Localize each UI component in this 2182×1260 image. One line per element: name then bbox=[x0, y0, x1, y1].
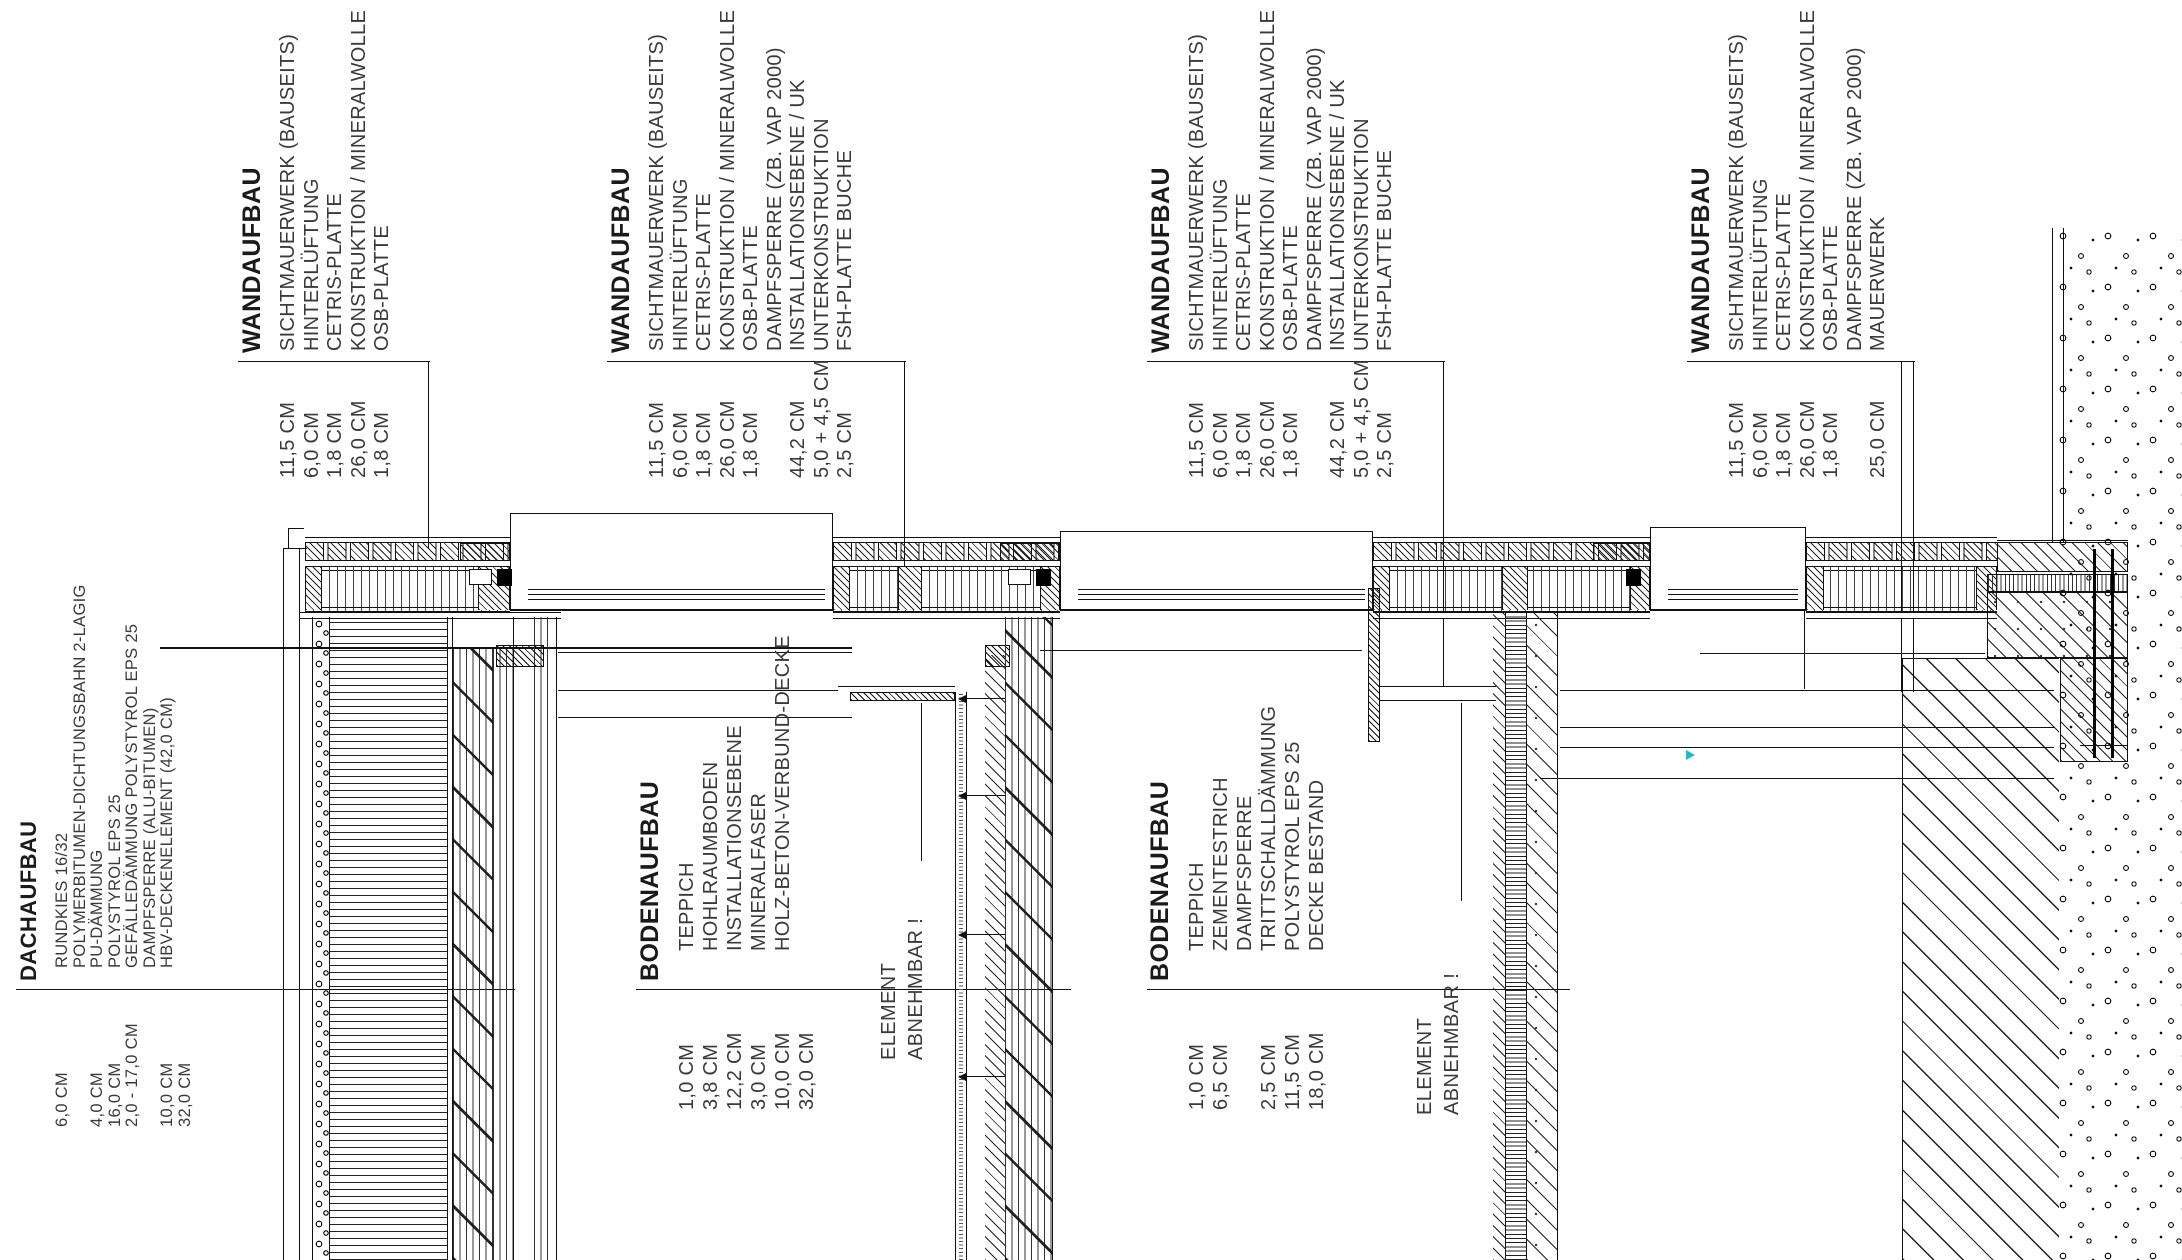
legend-row: 26,0 CMKONSTRUKTION / MINERALWOLLE bbox=[1797, 6, 1821, 480]
dim-value: 2,0 - 17,0 CM bbox=[124, 984, 142, 1140]
layer-label: DAMPFSPERRE (ZB. VAP 2000) bbox=[1304, 47, 1328, 351]
legend-row: 3,8 CMHOHLRAUMBODEN bbox=[699, 702, 723, 1140]
layer-label: DAMPFSPERRE (ZB. VAP 2000) bbox=[764, 47, 788, 351]
legend-row: DAMPFSPERRE bbox=[1233, 702, 1257, 1140]
legend-row: 5,0 + 4,5 CMUNTERKONSTRUKTION bbox=[1351, 6, 1375, 480]
legend-block-bodenaufbau-1: BODENAUFBAU1,0 CMTEPPICH3,8 CMHOHLRAUMBO… bbox=[636, 702, 808, 1140]
layer-label: OSB-PLATTE bbox=[1280, 225, 1304, 351]
dim-value: 1,8 CM bbox=[1773, 367, 1797, 480]
legend-row: 26,0 CMKONSTRUKTION / MINERALWOLLE bbox=[348, 6, 372, 480]
note-line: ELEMENT bbox=[876, 858, 903, 1060]
layer-label: ZEMENTESTRICH bbox=[1209, 777, 1233, 951]
legend-row: 1,8 CMCETRIS-PLATTE bbox=[324, 6, 348, 480]
legend-row: DAMPFSPERRE (ZB. VAP 2000) bbox=[764, 6, 788, 480]
layer-label: OSB-PLATTE bbox=[371, 225, 395, 351]
legend-row: 5,0 + 4,5 CMUNTERKONSTRUKTION bbox=[811, 6, 835, 480]
layer-label: UNTERKONSTRUKTION bbox=[1351, 118, 1375, 351]
legend-row: 1,8 CMOSB-PLATTE bbox=[371, 6, 395, 480]
legend-row: 32,0 CM bbox=[177, 445, 195, 1140]
legend-block-wandaufbau-3: WANDAUFBAU11,5 CMSICHTMAUERWERK (BAUSEIT… bbox=[1147, 6, 1447, 480]
layer-label: RUNDKIES 16/32 bbox=[54, 833, 72, 968]
layer-label: HINTERLÜFTUNG bbox=[1210, 178, 1234, 351]
legend-row: 10,0 CMHOLZ-BETON-VERBUND-DECKE bbox=[771, 702, 795, 1140]
construction-detail-drawing: DACHAUFBAU6,0 CMRUNDKIES 16/32POLYMERBIT… bbox=[0, 0, 2182, 1260]
note-block-element-2: ELEMENTABNEHMBAR ! bbox=[1412, 898, 1472, 1115]
legend-row: 2,5 CMFSH-PLATTE BUCHE bbox=[1374, 6, 1398, 480]
layer-label: FSH-PLATTE BUCHE bbox=[834, 150, 858, 351]
legend-heading: DACHAUFBAU bbox=[16, 445, 42, 981]
dim-value: 6,0 CM bbox=[1210, 367, 1234, 480]
dim-value: 11,5 CM bbox=[277, 367, 301, 480]
legend-row: 16,0 CMPOLYSTYROL EPS 25 bbox=[107, 445, 125, 1140]
legend-row: 11,5 CMSICHTMAUERWERK (BAUSEITS) bbox=[1726, 6, 1750, 480]
legend-row: 1,8 CMOSB-PLATTE bbox=[1820, 6, 1844, 480]
legend-heading: BODENAUFBAU bbox=[1146, 702, 1175, 981]
dim-value: 1,8 CM bbox=[1233, 367, 1257, 480]
dim-value: 4,0 CM bbox=[89, 984, 107, 1140]
dim-value: 10,0 CM bbox=[771, 967, 795, 1140]
dim-value: 26,0 CM bbox=[717, 367, 741, 480]
dim-value: 26,0 CM bbox=[1257, 367, 1281, 480]
dim-value: 32,0 CM bbox=[795, 967, 819, 1140]
legend-row: 44,2 CMINSTALLATIONSEBENE / UK bbox=[1327, 6, 1351, 480]
dim-value: 5,0 + 4,5 CM bbox=[1351, 367, 1375, 480]
legend-block-dachaufbau: DACHAUFBAU6,0 CMRUNDKIES 16/32POLYMERBIT… bbox=[16, 445, 202, 1140]
layer-label: DAMPFSPERRE (ALU-BITUMEN) bbox=[142, 707, 160, 968]
dim-value: 2,5 CM bbox=[834, 367, 858, 480]
dim-value: 11,5 CM bbox=[1186, 367, 1210, 480]
legend-row: 1,8 CMCETRIS-PLATTE bbox=[1773, 6, 1797, 480]
legend-row: DAMPFSPERRE (ZB. VAP 2000) bbox=[1304, 6, 1328, 480]
legend-row: 6,0 CMHINTERLÜFTUNG bbox=[1210, 6, 1234, 480]
layer-label: CETRIS-PLATTE bbox=[1233, 193, 1257, 351]
legend-heading: WANDAUFBAU bbox=[1687, 6, 1716, 353]
legend-block-wandaufbau-4: WANDAUFBAU11,5 CMSICHTMAUERWERK (BAUSEIT… bbox=[1687, 6, 1922, 480]
layer-label: FSH-PLATTE BUCHE bbox=[1374, 150, 1398, 351]
layer-label: INSTALLATIONSEBENE / UK bbox=[787, 79, 811, 351]
dim-value: 2,5 CM bbox=[1374, 367, 1398, 480]
layer-label: TEPPICH bbox=[1185, 862, 1209, 951]
dim-value: 1,8 CM bbox=[371, 367, 395, 480]
legend-row: 10,0 CMHBV-DECKENELEMENT (42,0 CM) bbox=[159, 445, 177, 1140]
layer-label: HINTERLÜFTUNG bbox=[670, 178, 694, 351]
note-line: ABNEHMBAR ! bbox=[903, 858, 930, 1060]
legend-row: 18,0 CMDECKE BESTAND bbox=[1305, 702, 1329, 1140]
layer-label: KONSTRUKTION / MINERALWOLLE bbox=[717, 10, 741, 351]
layer-label: TEPPICH bbox=[675, 862, 699, 951]
layer-label: INSTALLATIONSEBENE bbox=[723, 725, 747, 951]
dim-value: 44,2 CM bbox=[787, 367, 811, 480]
legend-row: 2,5 CMTRITTSCHALLDÄMMUNG bbox=[1257, 702, 1281, 1140]
dim-value: 3,0 CM bbox=[747, 967, 771, 1140]
dim-value: 1,8 CM bbox=[1820, 367, 1844, 480]
dim-value: 16,0 CM bbox=[107, 984, 125, 1140]
legend-row: 4,0 CMPU-DÄMMUNG bbox=[89, 445, 107, 1140]
layer-label: POLYSTYROL EPS 25 bbox=[1281, 741, 1305, 951]
legend-row: 1,8 CMCETRIS-PLATTE bbox=[1233, 6, 1257, 480]
legend-row: 2,5 CMFSH-PLATTE BUCHE bbox=[834, 6, 858, 480]
legend-row: 1,8 CMOSB-PLATTE bbox=[740, 6, 764, 480]
layer-label: OSB-PLATTE bbox=[740, 225, 764, 351]
dim-value: 25,0 CM bbox=[1867, 367, 1891, 480]
layer-label: PU-DÄMMUNG bbox=[89, 850, 107, 969]
dim-value: 11,5 CM bbox=[646, 367, 670, 480]
legend-row: 11,5 CMSICHTMAUERWERK (BAUSEITS) bbox=[277, 6, 301, 480]
dim-value: 6,0 CM bbox=[670, 367, 694, 480]
layer-label: DAMPFSPERRE bbox=[1233, 795, 1257, 951]
layer-label: HOLZ-BETON-VERBUND-DECKE bbox=[771, 635, 795, 951]
dim-value: 2,5 CM bbox=[1257, 967, 1281, 1140]
dim-value: 1,8 CM bbox=[1280, 367, 1304, 480]
legend-row: 25,0 CMMAUERWERK bbox=[1867, 6, 1891, 480]
dim-value: 44,2 CM bbox=[1327, 367, 1351, 480]
layer-label: KONSTRUKTION / MINERALWOLLE bbox=[1797, 10, 1821, 351]
legend-heading: WANDAUFBAU bbox=[607, 6, 636, 353]
layer-label: CETRIS-PLATTE bbox=[693, 193, 717, 351]
dim-value: 26,0 CM bbox=[1797, 367, 1821, 480]
dim-value: 32,0 CM bbox=[177, 984, 195, 1140]
layer-label: OSB-PLATTE bbox=[1820, 225, 1844, 351]
layer-label: DECKE BESTAND bbox=[1305, 780, 1329, 951]
legend-block-bodenaufbau-2: BODENAUFBAU1,0 CMTEPPICH6,5 CMZEMENTESTR… bbox=[1146, 702, 1362, 1140]
layer-label: KONSTRUKTION / MINERALWOLLE bbox=[348, 10, 372, 351]
legend-block-wandaufbau-1: WANDAUFBAU11,5 CMSICHTMAUERWERK (BAUSEIT… bbox=[238, 6, 438, 480]
legend-row: DAMPFSPERRE (ALU-BITUMEN) bbox=[142, 445, 160, 1140]
layer-label: CETRIS-PLATTE bbox=[1773, 193, 1797, 351]
legend-row: 1,8 CMOSB-PLATTE bbox=[1280, 6, 1304, 480]
layer-label: SICHTMAUERWERK (BAUSEITS) bbox=[1186, 34, 1210, 351]
legend-row: 6,0 CMHINTERLÜFTUNG bbox=[670, 6, 694, 480]
legend-row: 6,0 CMHINTERLÜFTUNG bbox=[301, 6, 325, 480]
legend-row: 6,0 CMHINTERLÜFTUNG bbox=[1750, 6, 1774, 480]
layer-label: DAMPFSPERRE (ZB. VAP 2000) bbox=[1844, 47, 1868, 351]
legend-row: 32,0 CM bbox=[795, 702, 819, 1140]
layer-label: INSTALLATIONSEBENE / UK bbox=[1327, 79, 1351, 351]
dim-value: 18,0 CM bbox=[1305, 967, 1329, 1140]
dim-value: 6,0 CM bbox=[301, 367, 325, 480]
dim-value: 6,0 CM bbox=[54, 984, 72, 1140]
dim-value: 5,0 + 4,5 CM bbox=[811, 367, 835, 480]
legend-row: POLYMERBITUMEN-DICHTUNGSBAHN 2-LAGIG bbox=[72, 445, 90, 1140]
layer-label: SICHTMAUERWERK (BAUSEITS) bbox=[646, 34, 670, 351]
note-block-element-1: ELEMENTABNEHMBAR ! bbox=[876, 858, 936, 1060]
legend-row: 11,5 CMPOLYSTYROL EPS 25 bbox=[1281, 702, 1305, 1140]
dim-value: 12,2 CM bbox=[723, 967, 747, 1140]
dim-value: 1,8 CM bbox=[693, 367, 717, 480]
legend-row: 11,5 CMSICHTMAUERWERK (BAUSEITS) bbox=[646, 6, 670, 480]
legend-row: DAMPFSPERRE (ZB. VAP 2000) bbox=[1844, 6, 1868, 480]
layer-label: GEFÄLLEDÄMMUNG POLYSTYROL EPS 25 bbox=[124, 624, 142, 968]
dim-value: 1,8 CM bbox=[324, 367, 348, 480]
legend-row: 11,5 CMSICHTMAUERWERK (BAUSEITS) bbox=[1186, 6, 1210, 480]
layer-label: MAUERWERK bbox=[1867, 216, 1891, 351]
legend-row: 3,0 CMMINERALFASER bbox=[747, 702, 771, 1140]
legend-row: 26,0 CMKONSTRUKTION / MINERALWOLLE bbox=[717, 6, 741, 480]
layer-label: HBV-DECKENELEMENT (42,0 CM) bbox=[159, 697, 177, 968]
note-line: ELEMENT bbox=[1412, 898, 1439, 1115]
legend-layer: DACHAUFBAU6,0 CMRUNDKIES 16/32POLYMERBIT… bbox=[0, 0, 2182, 1260]
layer-label: HINTERLÜFTUNG bbox=[301, 178, 325, 351]
layer-label: UNTERKONSTRUKTION bbox=[811, 118, 835, 351]
layer-label: KONSTRUKTION / MINERALWOLLE bbox=[1257, 10, 1281, 351]
layer-label: SICHTMAUERWERK (BAUSEITS) bbox=[1726, 34, 1750, 351]
legend-row: 12,2 CMINSTALLATIONSEBENE bbox=[723, 702, 747, 1140]
legend-row: 1,0 CMTEPPICH bbox=[1185, 702, 1209, 1140]
layer-label: SICHTMAUERWERK (BAUSEITS) bbox=[277, 34, 301, 351]
legend-row: 6,0 CMRUNDKIES 16/32 bbox=[54, 445, 72, 1140]
layer-label: HOHLRAUMBODEN bbox=[699, 762, 723, 951]
dim-value: 11,5 CM bbox=[1726, 367, 1750, 480]
dim-value: 1,0 CM bbox=[1185, 967, 1209, 1140]
dim-value: 26,0 CM bbox=[348, 367, 372, 480]
layer-label: MINERALFASER bbox=[747, 793, 771, 951]
legend-row: 6,5 CMZEMENTESTRICH bbox=[1209, 702, 1233, 1140]
legend-row: 2,0 - 17,0 CMGEFÄLLEDÄMMUNG POLYSTYROL E… bbox=[124, 445, 142, 1140]
legend-block-wandaufbau-2: WANDAUFBAU11,5 CMSICHTMAUERWERK (BAUSEIT… bbox=[607, 6, 907, 480]
layer-label: TRITTSCHALLDÄMMUNG bbox=[1257, 706, 1281, 951]
legend-row: 26,0 CMKONSTRUKTION / MINERALWOLLE bbox=[1257, 6, 1281, 480]
layer-label: POLYMERBITUMEN-DICHTUNGSBAHN 2-LAGIG bbox=[72, 584, 90, 968]
legend-row: 44,2 CMINSTALLATIONSEBENE / UK bbox=[787, 6, 811, 480]
dim-value: 3,8 CM bbox=[699, 967, 723, 1140]
dim-value: 10,0 CM bbox=[159, 984, 177, 1140]
legend-row: 1,0 CMTEPPICH bbox=[675, 702, 699, 1140]
legend-heading: WANDAUFBAU bbox=[1147, 6, 1176, 353]
legend-heading: BODENAUFBAU bbox=[636, 702, 665, 981]
dim-value: 1,8 CM bbox=[740, 367, 764, 480]
layer-label: POLYSTYROL EPS 25 bbox=[107, 794, 125, 968]
dim-value: 11,5 CM bbox=[1281, 967, 1305, 1140]
note-line: ABNEHMBAR ! bbox=[1439, 898, 1466, 1115]
dim-value: 1,0 CM bbox=[675, 967, 699, 1140]
dim-value: 6,5 CM bbox=[1209, 967, 1233, 1140]
layer-label: CETRIS-PLATTE bbox=[324, 193, 348, 351]
legend-heading: WANDAUFBAU bbox=[238, 6, 267, 353]
legend-row: 1,8 CMCETRIS-PLATTE bbox=[693, 6, 717, 480]
layer-label: HINTERLÜFTUNG bbox=[1750, 178, 1774, 351]
dim-value: 6,0 CM bbox=[1750, 367, 1774, 480]
